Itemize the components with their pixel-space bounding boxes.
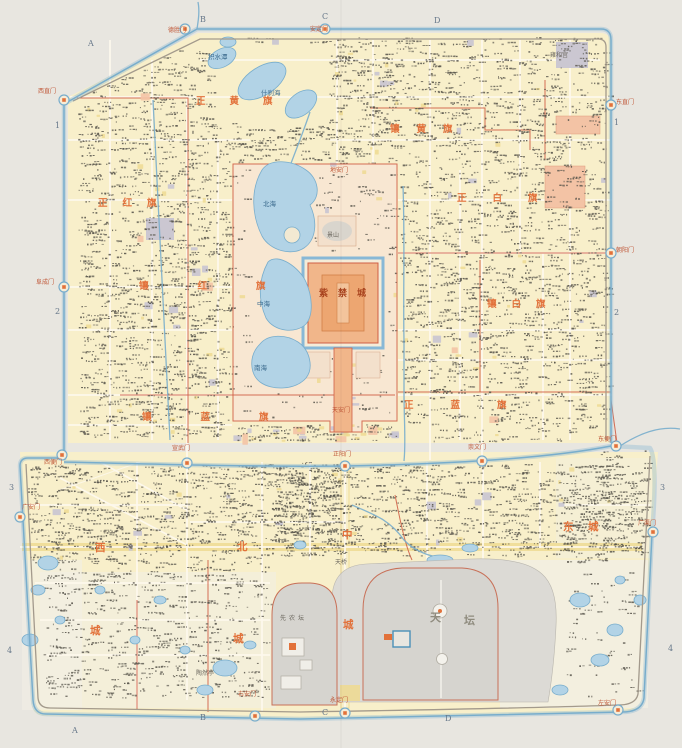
gate-tower-icon xyxy=(480,459,484,463)
map-label: 什刹海 xyxy=(261,88,281,97)
map-label: 南海 xyxy=(254,363,268,372)
grid-letter: A xyxy=(71,726,78,735)
gate-tower-icon xyxy=(614,444,618,448)
gate-tower-icon xyxy=(253,714,257,718)
beijing-historical-map: 正黄旗镶黄旗正白旗镶白旗正红旗镶红旗镶蓝旗正蓝旗西城北城中城东城紫禁城景山北海中… xyxy=(0,0,682,748)
grid-letter: 2 xyxy=(614,308,619,317)
grid-letter: C xyxy=(322,12,328,21)
map-label: 阜成门 xyxy=(36,278,54,286)
map-label: 镶红旗 xyxy=(139,280,315,292)
grid-letter: D xyxy=(434,16,440,25)
map-label: 正阳门 xyxy=(333,450,351,458)
map-label: 德胜门 xyxy=(168,26,186,34)
map-label: 中 xyxy=(342,528,353,541)
map-label: 先农坛 xyxy=(280,614,307,622)
gate-tower-icon xyxy=(609,251,613,255)
grid-letter: 3 xyxy=(9,483,14,492)
map-label: 西直门 xyxy=(38,87,56,95)
map-label: 左安门 xyxy=(598,699,616,707)
map-label: 广渠门 xyxy=(638,519,656,527)
map-label: 天桥 xyxy=(335,558,347,566)
grid-letter: 4 xyxy=(668,644,673,653)
map-label: 永定门 xyxy=(330,696,348,704)
map-label: 正红旗 xyxy=(98,197,172,209)
temple-of-heaven-wall xyxy=(363,568,498,700)
map-label: 东便门 xyxy=(598,435,616,443)
map-label: 镶白旗 xyxy=(487,298,561,310)
map-label: 城 xyxy=(90,624,101,637)
map-label: 城 xyxy=(343,618,354,631)
zhaigong-palace xyxy=(393,631,410,647)
map-label: 朝阳门 xyxy=(616,246,634,254)
huanqiu-mound xyxy=(437,654,448,665)
gate-tower-icon xyxy=(343,464,347,468)
gate-tower-icon xyxy=(62,285,66,289)
zhaigong-label-mark xyxy=(384,634,392,640)
gate-tower-icon xyxy=(185,461,189,465)
map-label: 景山 xyxy=(327,231,339,239)
map-label: 崇文门 xyxy=(468,443,486,451)
map-label: 陶然亭 xyxy=(196,669,214,677)
map-label: 广安门 xyxy=(22,503,40,511)
gate-tower-icon xyxy=(62,98,66,102)
imperial-way-corridor xyxy=(334,348,352,432)
xiannongtan-field xyxy=(281,676,301,689)
map-label: 宣武门 xyxy=(172,444,190,452)
map-label: 天安门 xyxy=(332,406,350,414)
map-label: 天 xyxy=(430,611,442,624)
grid-letter: 3 xyxy=(660,483,665,492)
map-label: 地安门 xyxy=(330,166,348,174)
grid-letter: A xyxy=(87,39,94,48)
map-label: 镶蓝旗 xyxy=(142,411,318,423)
map-label: 东 xyxy=(563,520,574,533)
map-label: 北 xyxy=(237,540,248,553)
map-label: 正蓝旗 xyxy=(404,399,544,411)
grid-letter: 4 xyxy=(7,646,12,655)
map-label: 正白旗 xyxy=(457,192,564,204)
map-label: 城 xyxy=(233,632,244,645)
xiannongtan-pavilion xyxy=(300,660,312,670)
gate-tower-icon xyxy=(18,515,22,519)
grid-letter: 2 xyxy=(55,307,60,316)
map-label: 正黄旗 xyxy=(196,95,297,107)
map-label: 北海 xyxy=(263,199,277,208)
grid-letter: C xyxy=(322,708,328,717)
grid-letter: B xyxy=(200,713,206,722)
gate-tower-icon xyxy=(616,708,620,712)
grid-letter: 1 xyxy=(614,118,619,127)
gate-tower-icon xyxy=(60,453,64,457)
map-label: 雍和宫 xyxy=(550,51,568,59)
map-label: 西 xyxy=(95,542,106,554)
map-label: 镶黄旗 xyxy=(390,123,470,135)
map-label: 安定门 xyxy=(310,25,328,33)
grid-letter: D xyxy=(445,714,451,723)
map-label: 东直门 xyxy=(616,98,634,106)
grid-letter: 1 xyxy=(55,121,60,130)
map-label: 中海 xyxy=(257,299,271,308)
map-page: 正黄旗镶黄旗正白旗镶白旗正红旗镶红旗镶蓝旗正蓝旗西城北城中城东城紫禁城景山北海中… xyxy=(0,0,682,748)
taimiao-block xyxy=(356,352,380,378)
map-label: 积水潭 xyxy=(208,52,228,61)
grid-letter: B xyxy=(200,15,206,24)
map-label: 城 xyxy=(588,520,599,533)
gate-tower-icon xyxy=(609,103,613,107)
map-label: 紫禁城 xyxy=(319,287,376,299)
map-label: 坛 xyxy=(464,613,475,627)
gate-tower-icon xyxy=(651,530,655,534)
xiannongtan-hall-dot xyxy=(289,643,296,650)
map-label: 右安门 xyxy=(238,690,256,698)
map-label: 西便门 xyxy=(44,458,62,466)
gate-tower-icon xyxy=(343,711,347,715)
qionghua-island xyxy=(284,227,300,243)
